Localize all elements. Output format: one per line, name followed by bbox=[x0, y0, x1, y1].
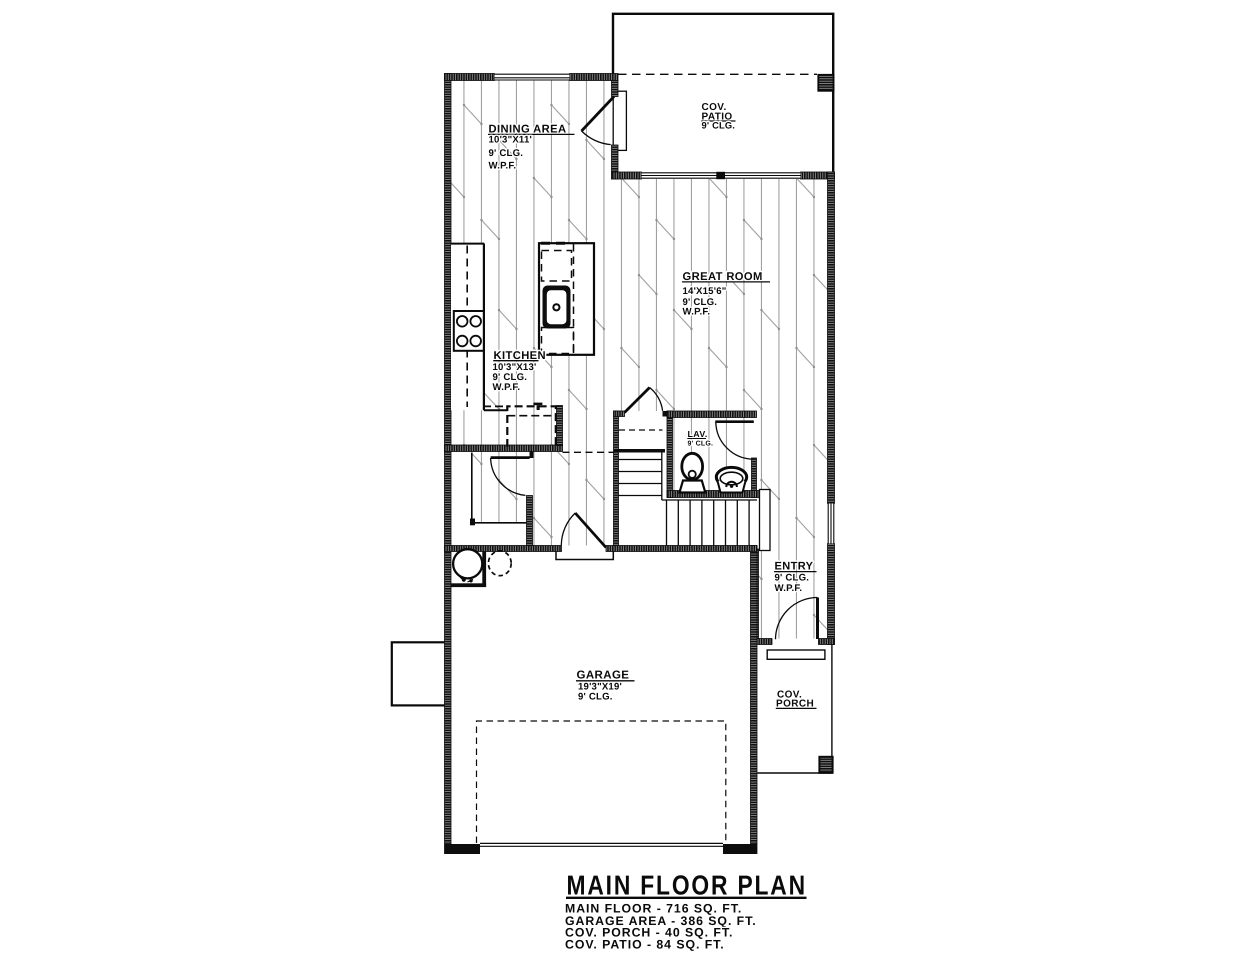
svg-text:9' CLG.: 9' CLG. bbox=[688, 441, 714, 448]
svg-text:MAIN FLOOR PLAN: MAIN FLOOR PLAN bbox=[567, 870, 807, 901]
svg-text:9' CLG.: 9' CLG. bbox=[489, 148, 524, 159]
svg-text:ENTRY: ENTRY bbox=[775, 561, 814, 573]
svg-text:W.P.F.: W.P.F. bbox=[683, 307, 711, 318]
svg-text:LAV.: LAV. bbox=[688, 429, 708, 439]
svg-text:W.P.F.: W.P.F. bbox=[489, 160, 517, 171]
svg-text:9' CLG.: 9' CLG. bbox=[578, 691, 613, 702]
svg-text:W.P.F.: W.P.F. bbox=[493, 382, 521, 393]
svg-text:W.P.F.: W.P.F. bbox=[775, 583, 803, 594]
svg-text:COV. PATIO - 84 SQ. FT.: COV. PATIO - 84 SQ. FT. bbox=[565, 938, 725, 952]
svg-text:GREAT ROOM: GREAT ROOM bbox=[683, 271, 763, 283]
svg-text:10'3"X11': 10'3"X11' bbox=[489, 135, 532, 146]
svg-text:14'X15'6": 14'X15'6" bbox=[683, 286, 727, 297]
svg-text:GARAGE: GARAGE bbox=[577, 670, 630, 682]
svg-text:9' CLG.: 9' CLG. bbox=[702, 120, 736, 130]
svg-text:KITCHEN: KITCHEN bbox=[494, 350, 547, 362]
